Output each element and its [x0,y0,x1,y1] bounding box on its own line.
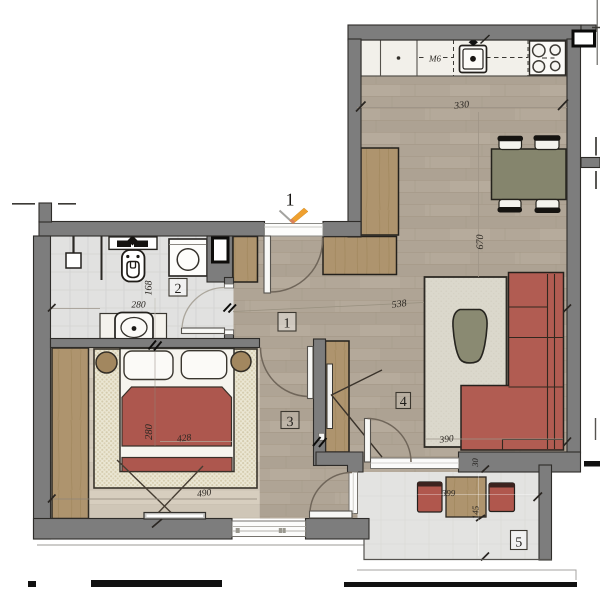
svg-text:5: 5 [515,535,522,550]
svg-text:2: 2 [174,282,181,297]
svg-text:428: 428 [176,433,192,445]
svg-text:330: 330 [453,99,470,112]
svg-text:168: 168 [144,281,155,296]
svg-text:280: 280 [131,300,146,310]
svg-text:30: 30 [470,458,480,468]
svg-text:4: 4 [400,395,407,410]
svg-text:399: 399 [441,488,456,498]
svg-text:490: 490 [197,488,213,500]
svg-text:3: 3 [286,415,293,430]
svg-text:390: 390 [438,434,455,446]
svg-text:670: 670 [475,235,486,250]
svg-text:538: 538 [391,298,407,311]
svg-text:1: 1 [285,189,294,209]
svg-text:M6: M6 [428,53,442,63]
svg-text:145: 145 [471,505,481,519]
svg-text:1: 1 [283,316,290,331]
svg-text:280: 280 [144,423,155,440]
